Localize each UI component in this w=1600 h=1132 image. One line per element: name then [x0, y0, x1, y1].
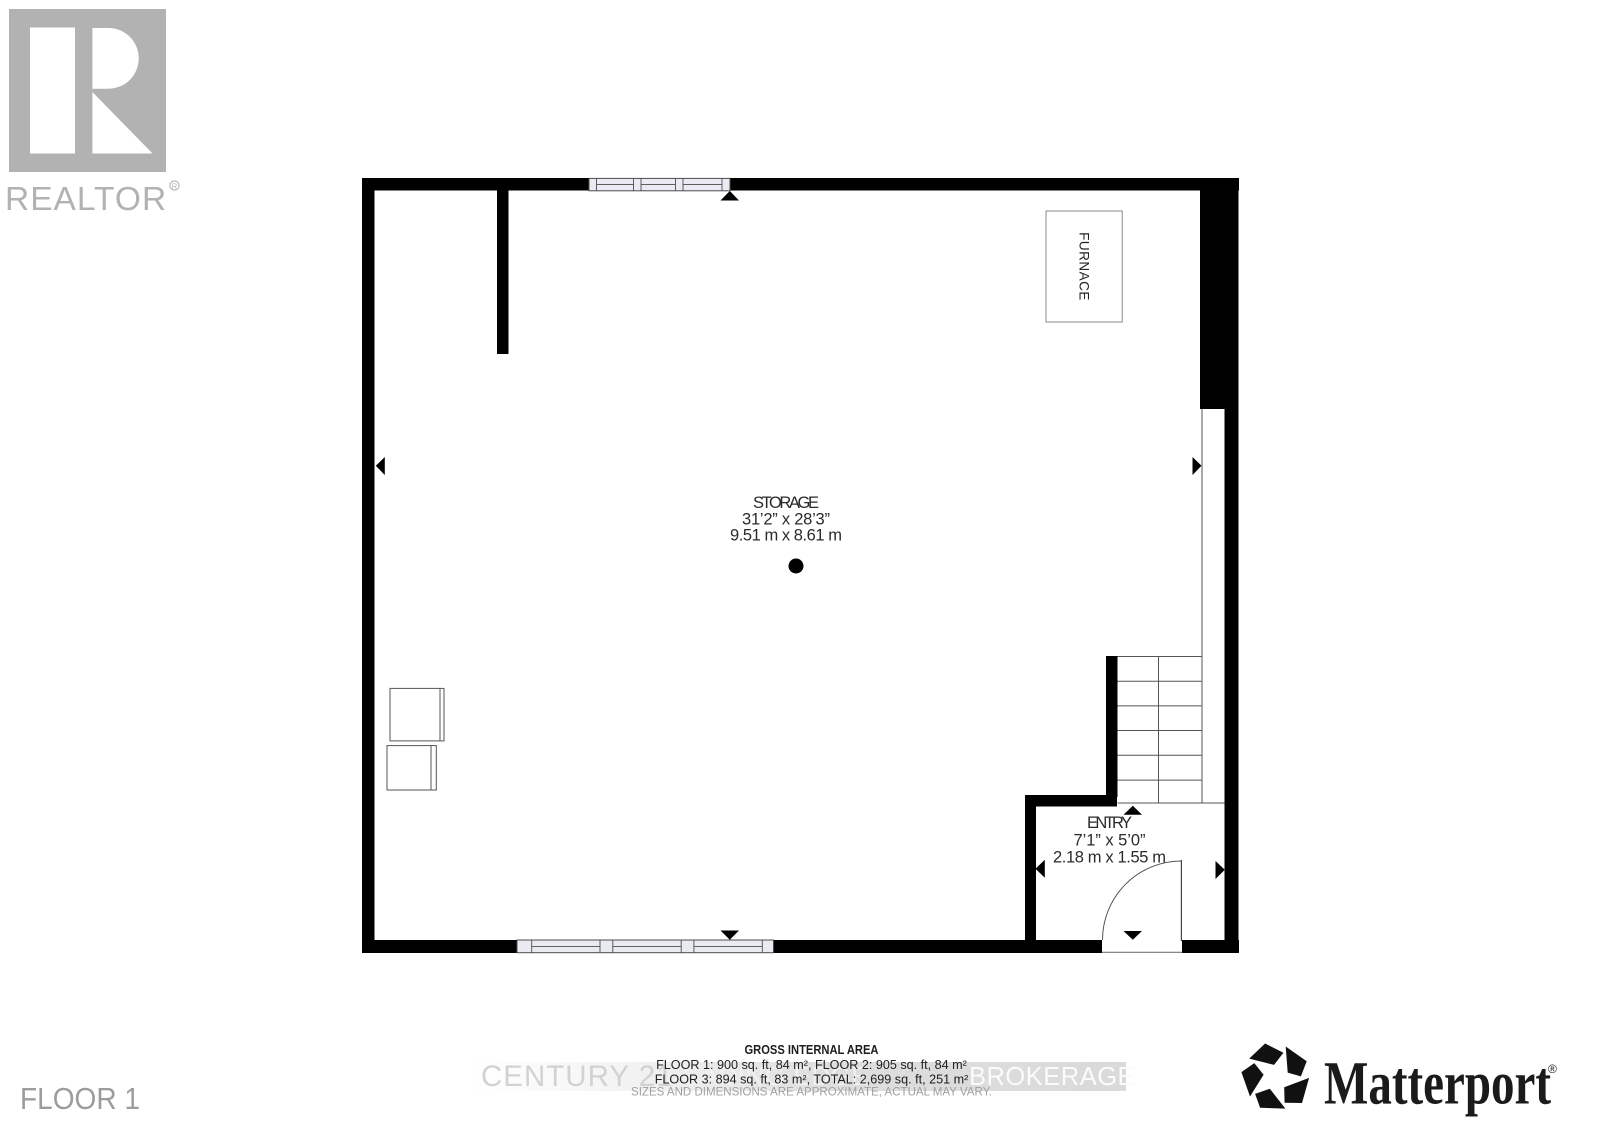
- svg-text:FLOOR 3: 894 sq. ft, 83 m², TO: FLOOR 3: 894 sq. ft, 83 m², TOTAL: 2,699…: [655, 1073, 969, 1087]
- svg-text:STORAGE: STORAGE: [753, 494, 819, 512]
- svg-text:FURNACE: FURNACE: [1077, 232, 1092, 301]
- svg-text:FLOOR 1: FLOOR 1: [20, 1082, 140, 1116]
- svg-text:SIZES AND DIMENSIONS ARE APPRO: SIZES AND DIMENSIONS ARE APPROXIMATE, AC…: [631, 1086, 992, 1099]
- svg-text:2.18 m x 1.55 m: 2.18 m x 1.55 m: [1053, 849, 1166, 867]
- svg-text:7’1” x 5’0”: 7’1” x 5’0”: [1074, 831, 1146, 849]
- svg-text:9.51 m x 8.61 m: 9.51 m x 8.61 m: [730, 527, 842, 545]
- svg-text:ENTRY: ENTRY: [1087, 814, 1132, 832]
- svg-text:GROSS INTERNAL AREA: GROSS INTERNAL AREA: [745, 1043, 879, 1057]
- svg-text:REALTOR: REALTOR: [5, 181, 167, 218]
- svg-text:BROKERAGE: BROKERAGE: [969, 1063, 1135, 1091]
- svg-text:Matterport: Matterport: [1324, 1051, 1552, 1118]
- svg-text:®: ®: [1548, 1062, 1557, 1076]
- svg-text:FLOOR 1: 900 sq. ft, 84 m², FL: FLOOR 1: 900 sq. ft, 84 m², FLOOR 2: 905…: [656, 1058, 967, 1072]
- svg-text:R: R: [172, 181, 178, 190]
